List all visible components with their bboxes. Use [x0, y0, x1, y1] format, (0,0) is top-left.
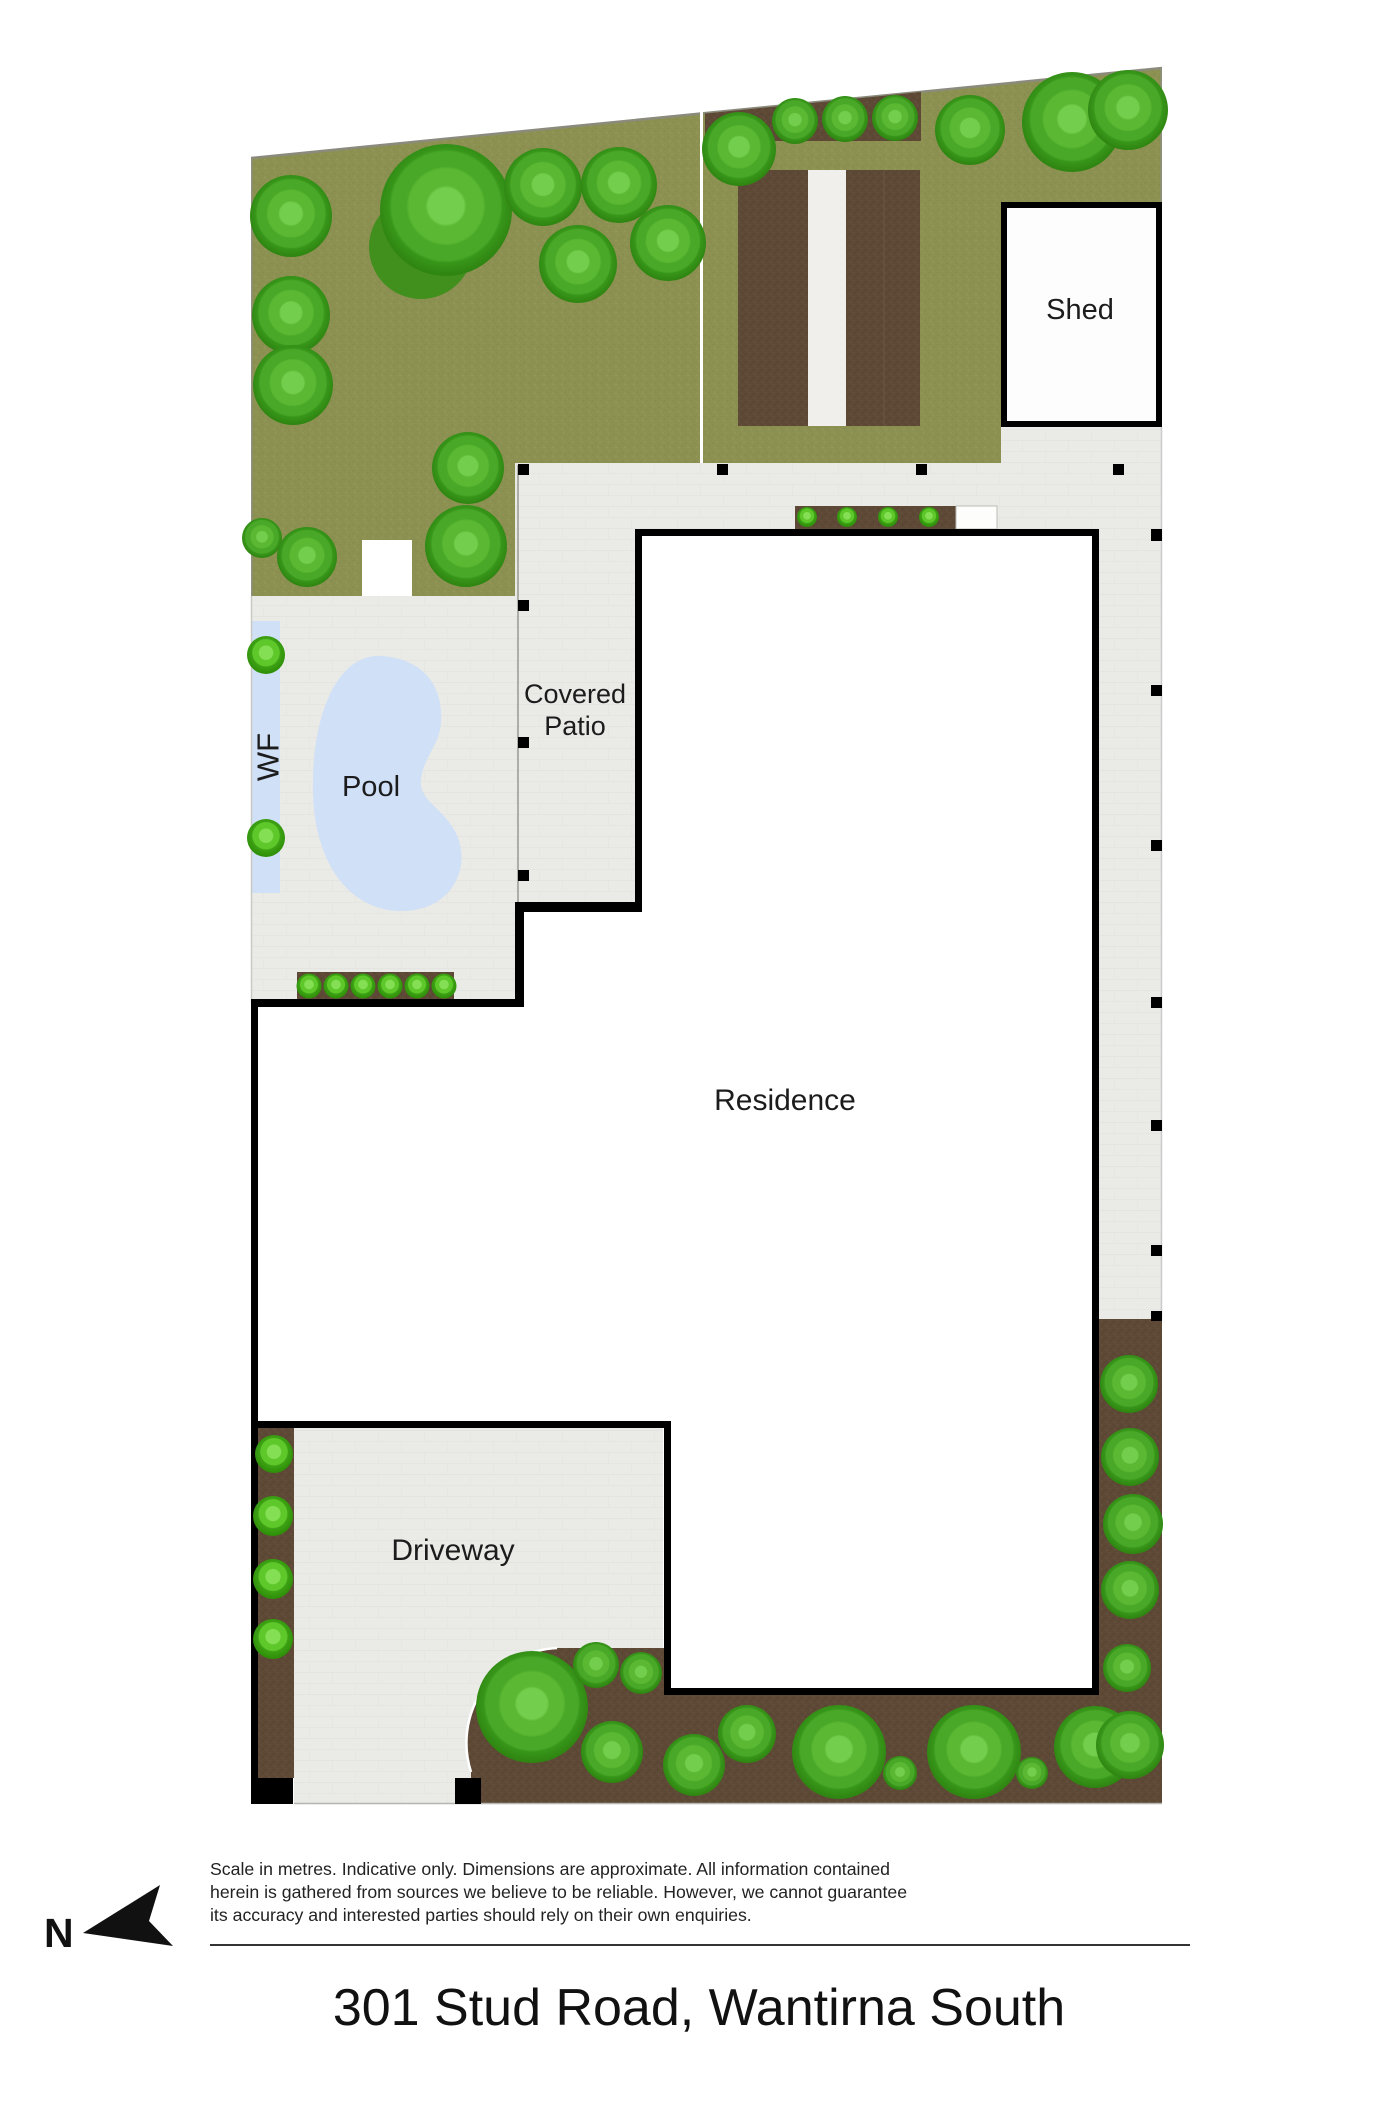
svg-text:WF: WF — [251, 733, 286, 781]
svg-text:Driveway: Driveway — [391, 1534, 514, 1567]
svg-text:Patio: Patio — [544, 711, 606, 741]
svg-text:Covered: Covered — [524, 679, 626, 709]
svg-text:Pool: Pool — [342, 771, 400, 803]
svg-text:301 Stud Road, Wantirna South: 301 Stud Road, Wantirna South — [333, 1979, 1065, 2037]
svg-text:N: N — [44, 1910, 74, 1956]
svg-text:Residence: Residence — [714, 1084, 856, 1117]
svg-text:herein is gathered from source: herein is gathered from sources we belie… — [210, 1882, 907, 1902]
svg-text:Scale in metres. Indicative on: Scale in metres. Indicative only. Dimens… — [210, 1859, 890, 1879]
svg-text:Shed: Shed — [1046, 294, 1114, 326]
svg-text:its accuracy and interested pa: its accuracy and interested parties shou… — [210, 1905, 752, 1925]
